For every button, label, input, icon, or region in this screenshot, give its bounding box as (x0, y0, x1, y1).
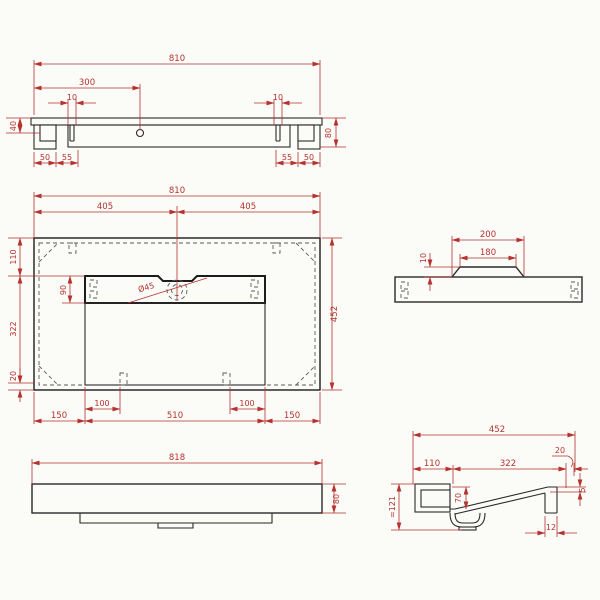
side-section-geometry (415, 484, 557, 530)
side-section-view: 452 110 322 20 =121 70 5 12 (388, 425, 588, 537)
dim-front-slot-left: 10 (67, 93, 77, 102)
dim-plan-center: 510 (167, 411, 183, 421)
front-elevation-geometry (31, 118, 322, 149)
technical-drawing-sheet: 810 300 10 10 40 80 50 55 55 50 (0, 0, 600, 600)
dim-side-edge: 20 (555, 446, 565, 455)
countertop-slab (31, 118, 322, 125)
bar-square-r1 (571, 282, 578, 289)
dim-front-bracket-height: 40 (9, 121, 18, 131)
dim-side-bowl-depth: 70 (454, 493, 463, 503)
dim-front-right-outer: 50 (304, 153, 314, 162)
bar-square-l2 (401, 291, 408, 298)
underside-step (80, 513, 272, 523)
drain-hole-front (137, 130, 144, 137)
dim-plan-left-half: 405 (97, 202, 113, 212)
channel-square-l1 (90, 280, 97, 287)
drain-trap-inner (455, 513, 480, 523)
dim-plan-drain-diameter: Ø45 (137, 280, 156, 294)
bottom-front-view: 818 80 (32, 453, 346, 528)
plan-view: 810 405 405 452 110 322 20 90 Ø45 100 10… (8, 186, 342, 424)
dim-front-left-inner: 55 (62, 153, 72, 162)
dim-front-tap-offset: 300 (79, 78, 95, 88)
apron-panel (68, 125, 290, 147)
dim-bracket-inner: 180 (480, 248, 496, 258)
dim-plan-depth: 452 (330, 306, 340, 322)
dim-side-rim: 5 (578, 487, 587, 492)
bracket-section-geometry (395, 267, 582, 302)
drain-trap-foot (459, 527, 476, 530)
drain-boss (158, 523, 193, 528)
dim-bracket-height: 10 (419, 253, 428, 263)
dim-bracket-outer: 200 (480, 230, 496, 240)
basin-cutout (85, 303, 265, 385)
bottom-front-geometry (32, 484, 322, 528)
dim-plan-channel-depth: 90 (59, 285, 68, 295)
dim-plan-basin-length: 322 (9, 321, 18, 336)
bar-square-l1 (401, 282, 408, 289)
dim-front-left-outer: 50 (40, 153, 50, 162)
dim-front-width: 810 (169, 54, 185, 64)
channel-square-r1 (251, 280, 258, 287)
plan-dimensions: 810 405 405 452 110 322 20 90 Ø45 100 10… (8, 186, 342, 424)
dim-front-right-inner: 55 (282, 153, 292, 162)
plan-slot-top-left (69, 243, 76, 253)
plan-slot-bottom-right (223, 373, 230, 385)
bracket-section-dimensions: 200 180 10 (419, 230, 524, 291)
bracket-section-view: 200 180 10 (395, 230, 582, 302)
dim-plan-right-half: 405 (240, 202, 256, 212)
dim-plan-slot-right: 100 (239, 399, 254, 408)
front-elevation-view: 810 300 10 10 40 80 50 55 55 50 (6, 54, 346, 167)
right-bracket-notch (298, 125, 314, 141)
bar-square-r2 (571, 291, 578, 298)
bottom-front-dimensions: 818 80 (32, 453, 346, 513)
body-outline (32, 484, 322, 513)
front-elevation-dimensions: 810 300 10 10 40 80 50 55 55 50 (6, 54, 346, 167)
back-deck-box (415, 484, 450, 512)
right-hanger-slot (276, 125, 280, 141)
dim-plan-width: 810 (169, 186, 185, 196)
dim-plan-bottom-left: 150 (51, 411, 67, 421)
dim-plan-slot-left: 100 (94, 399, 109, 408)
back-deck-void (421, 490, 450, 507)
dim-side-basin: 322 (500, 459, 516, 469)
dim-bottom-width: 818 (169, 453, 185, 463)
dim-plan-bottom-right: 150 (284, 411, 300, 421)
plan-slot-top-right (273, 243, 280, 253)
dim-side-wall: 12 (546, 523, 556, 532)
dim-side-total-height: =121 (388, 496, 397, 518)
plan-slot-bottom-left (120, 373, 127, 385)
dim-side-depth: 452 (489, 425, 505, 435)
bracket-bar (395, 277, 582, 302)
dim-side-back: 110 (424, 459, 440, 469)
dim-front-total-height: 80 (324, 128, 333, 138)
dim-plan-back: 110 (9, 249, 18, 264)
side-section-dimensions: 452 110 322 20 =121 70 5 12 (388, 425, 588, 537)
bracket-raised-boss (452, 267, 524, 277)
dim-bottom-height: 80 (332, 494, 341, 504)
dim-front-slot-right: 10 (273, 93, 283, 102)
washbasin-technical-drawing: 810 300 10 10 40 80 50 55 55 50 (0, 0, 600, 600)
channel-square-r2 (251, 291, 258, 298)
dim-plan-front: 20 (9, 371, 18, 381)
channel-square-l2 (90, 291, 97, 298)
left-bracket-notch (40, 125, 56, 141)
left-hanger-slot (70, 125, 74, 141)
